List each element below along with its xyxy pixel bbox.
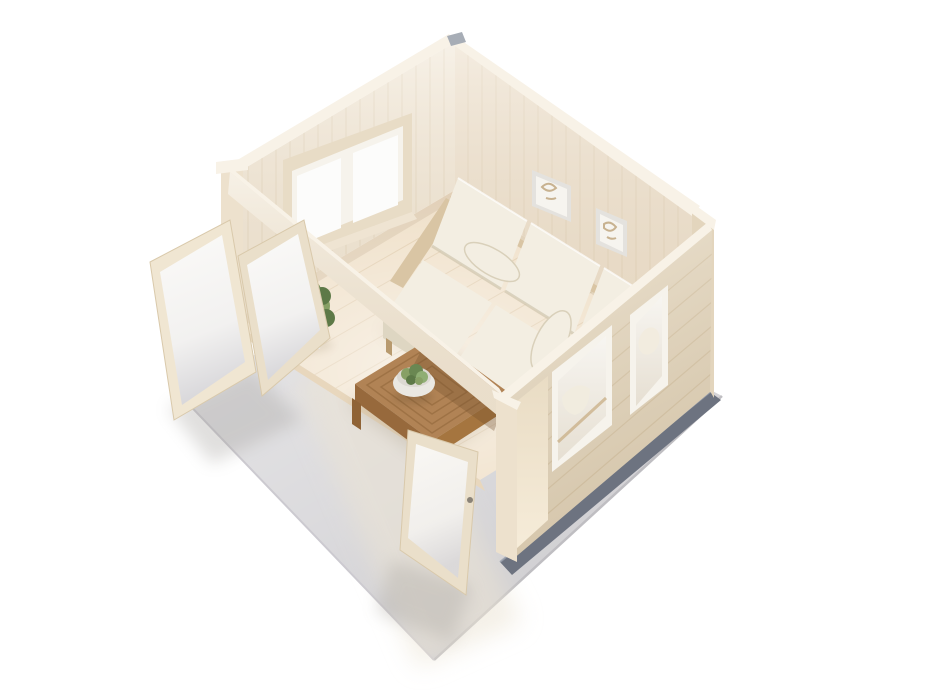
render-canvas bbox=[0, 0, 933, 700]
door-handle bbox=[467, 497, 473, 503]
cabin-render bbox=[0, 0, 933, 700]
front-corner-post bbox=[496, 396, 517, 562]
